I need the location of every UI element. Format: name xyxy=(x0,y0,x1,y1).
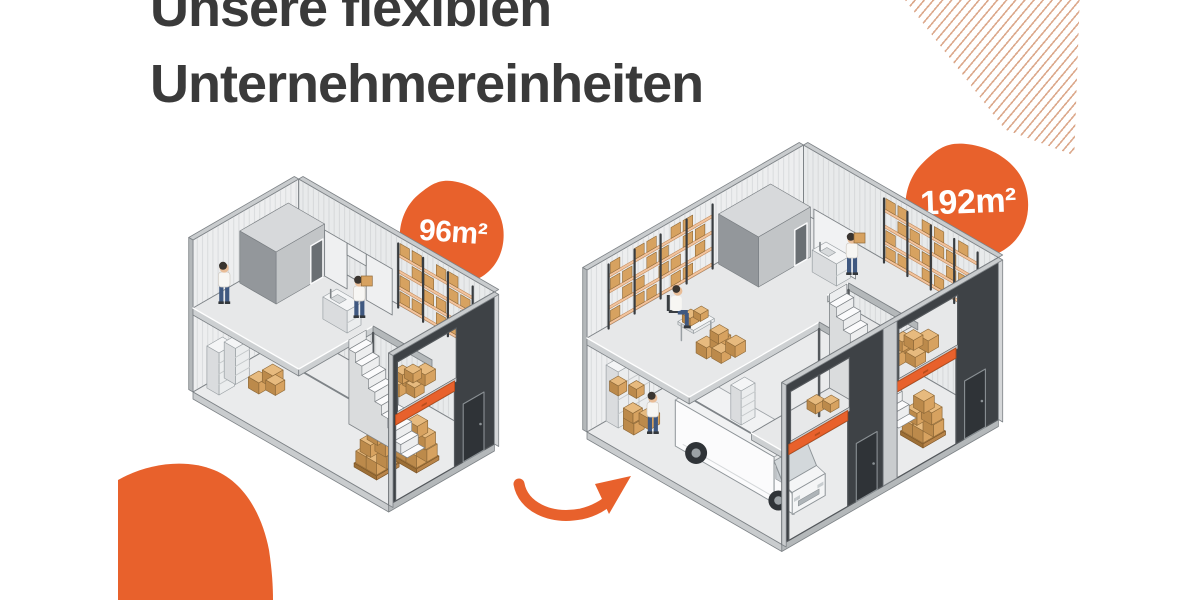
title-line-1: Unsere flexiblen xyxy=(150,0,703,46)
diagonal-lines-decoration xyxy=(905,0,1087,162)
warehouse-small-illustration xyxy=(180,168,520,530)
title-line-2: Unternehmereinheiten xyxy=(150,46,703,122)
page-title: Unsere flexiblen Unternehmereinheiten xyxy=(150,0,703,122)
page-root: Unsere flexiblen Unternehmereinheiten 96… xyxy=(0,0,1200,600)
growth-arrow-icon xyxy=(505,458,645,538)
